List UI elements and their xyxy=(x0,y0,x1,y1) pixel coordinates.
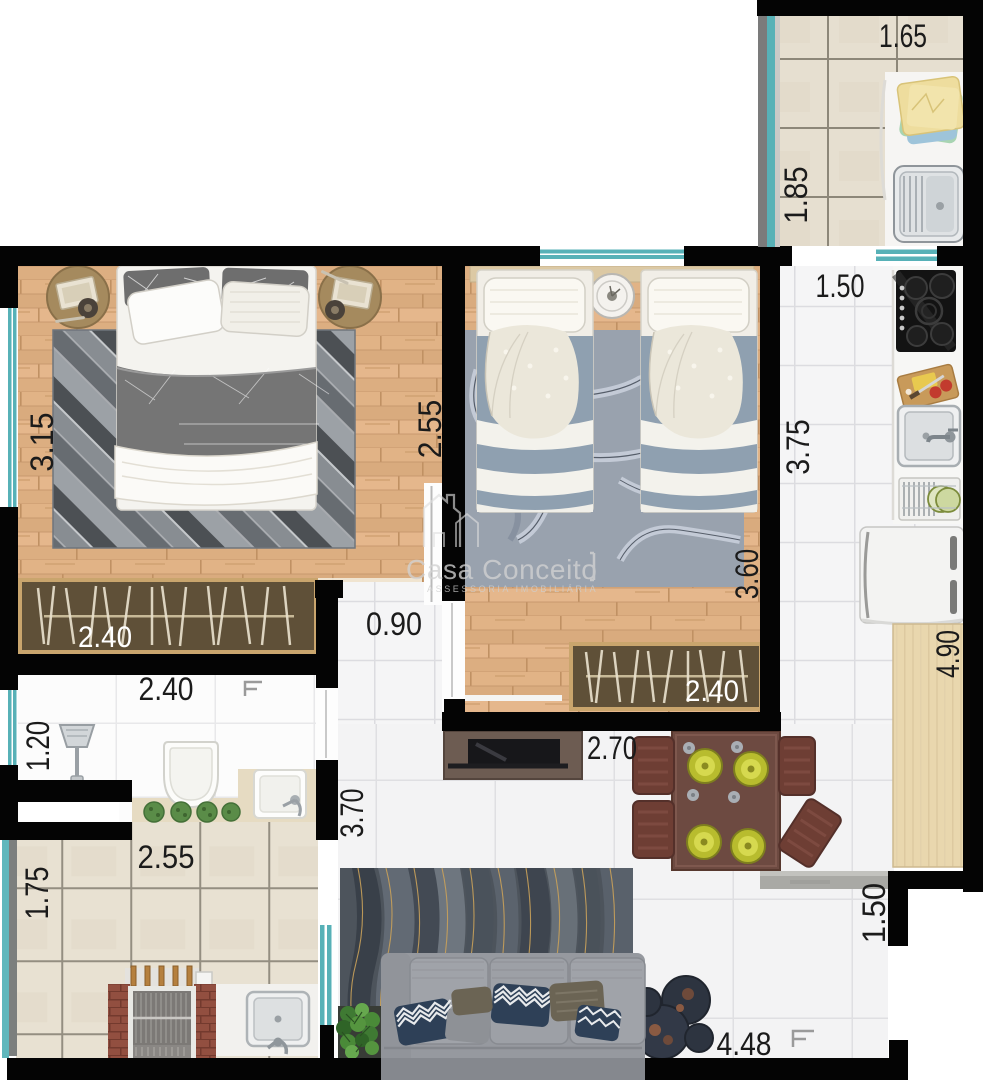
svg-text:3.60: 3.60 xyxy=(731,549,766,599)
svg-text:4.90: 4.90 xyxy=(931,630,967,678)
svg-text:1.50: 1.50 xyxy=(816,268,865,304)
svg-text:1.65: 1.65 xyxy=(879,18,927,54)
svg-text:3.75: 3.75 xyxy=(782,419,817,474)
svg-text:1.85: 1.85 xyxy=(778,166,814,223)
svg-text:2.40: 2.40 xyxy=(78,621,132,654)
svg-text:ASSESSORIA IMOBILIÁRIA: ASSESSORIA IMOBILIÁRIA xyxy=(427,584,598,594)
svg-text:2.70: 2.70 xyxy=(587,730,637,766)
svg-text:2.55: 2.55 xyxy=(412,400,448,459)
svg-text:1.75: 1.75 xyxy=(20,867,56,920)
svg-text:1.50: 1.50 xyxy=(856,883,893,943)
svg-text:3.70: 3.70 xyxy=(335,788,371,837)
svg-text:Casa Conceito: Casa Conceito xyxy=(406,554,597,585)
svg-text:3.15: 3.15 xyxy=(24,412,60,471)
svg-text:4.48: 4.48 xyxy=(717,1026,772,1062)
svg-text:2.40: 2.40 xyxy=(139,671,194,707)
svg-text:2.40: 2.40 xyxy=(685,675,739,708)
svg-text:2.55: 2.55 xyxy=(138,839,195,875)
svg-text:0.90: 0.90 xyxy=(366,606,422,642)
svg-text:1.20: 1.20 xyxy=(22,721,57,771)
